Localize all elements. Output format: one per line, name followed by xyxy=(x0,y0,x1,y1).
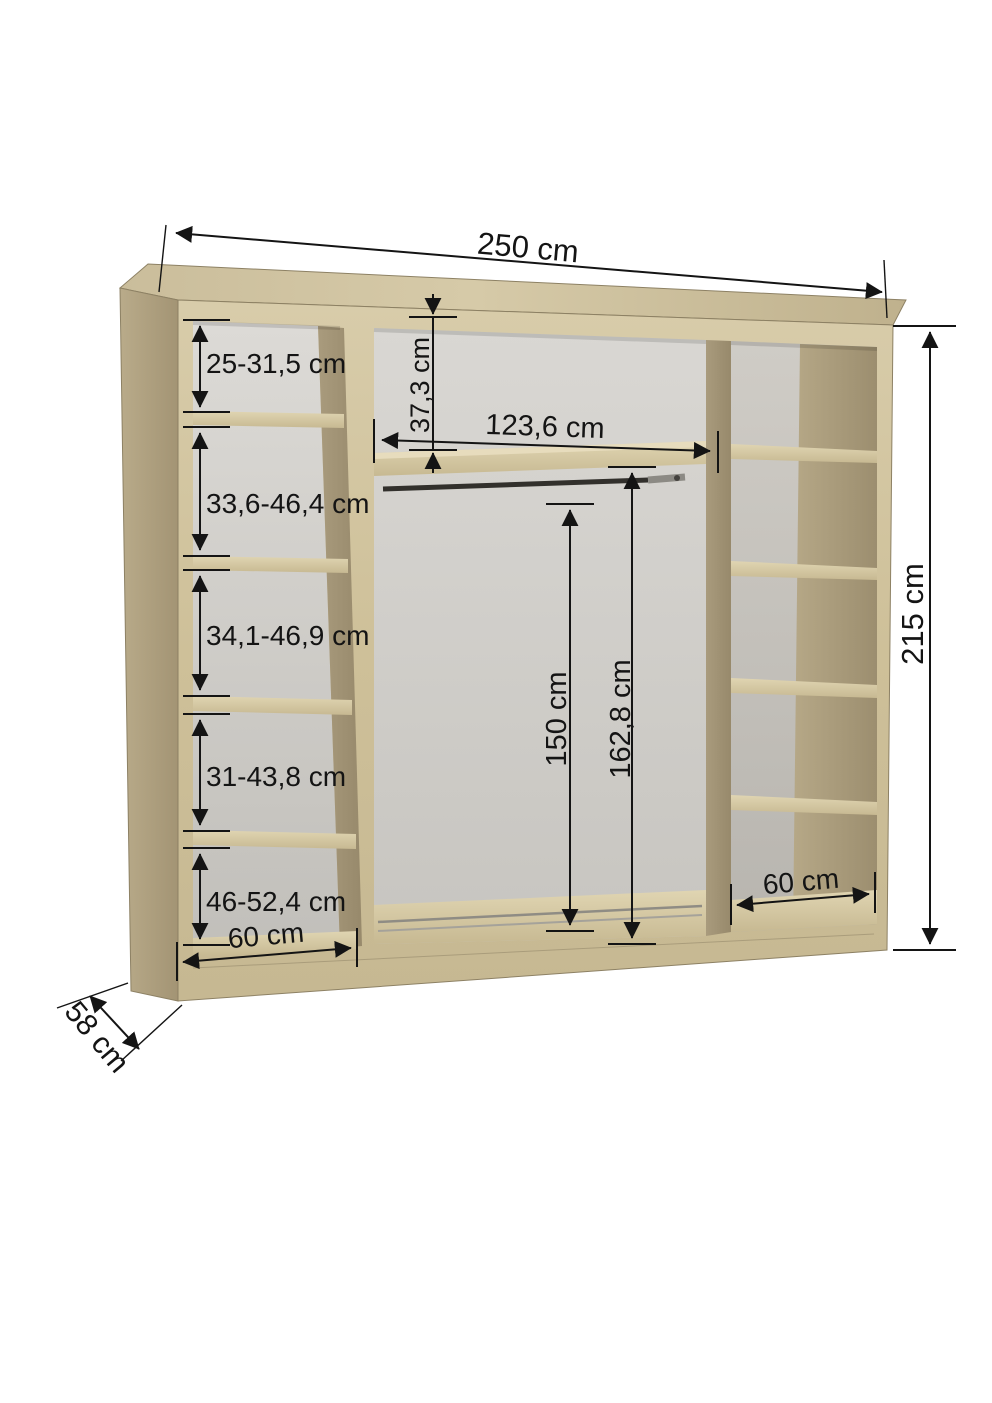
dim-height-label: 215 cm xyxy=(895,563,930,665)
dim-left-section-5-label: 46-52,4 cm xyxy=(206,886,346,917)
dim-left-bottom-width-label: 60 cm xyxy=(227,917,306,955)
dim-right-bottom-width-label: 60 cm xyxy=(762,863,841,901)
dim-middle-width-label: 123,6 cm xyxy=(485,409,605,445)
rail-end-cap xyxy=(674,475,680,481)
dim-rail-height-label: 150 cm xyxy=(541,671,573,766)
right-side-inner-panel xyxy=(793,344,877,927)
dim-left-section-4-label: 31-43,8 cm xyxy=(206,761,346,792)
wardrobe-dimension-diagram: 250 cm 215 cm 58 cm 25-31,5 cm 33,6-46,4… xyxy=(0,0,992,1403)
dim-middle-height-label: 162,8 cm xyxy=(605,659,637,778)
dim-left-section-1-label: 25-31,5 cm xyxy=(206,348,346,379)
diagram-svg: 250 cm 215 cm 58 cm 25-31,5 cm 33,6-46,4… xyxy=(0,0,992,1403)
wardrobe-left-side-panel xyxy=(120,288,178,1001)
right-divider-side xyxy=(706,340,731,936)
dim-left-section-3-label: 34,1-46,9 cm xyxy=(206,620,369,651)
dim-top-gap-label: 37,3 cm xyxy=(405,337,435,433)
dim-depth-label: 58 cm xyxy=(58,995,136,1079)
dim-left-section-2-label: 33,6-46,4 cm xyxy=(206,488,369,519)
dim-width-label: 250 cm xyxy=(476,226,580,270)
